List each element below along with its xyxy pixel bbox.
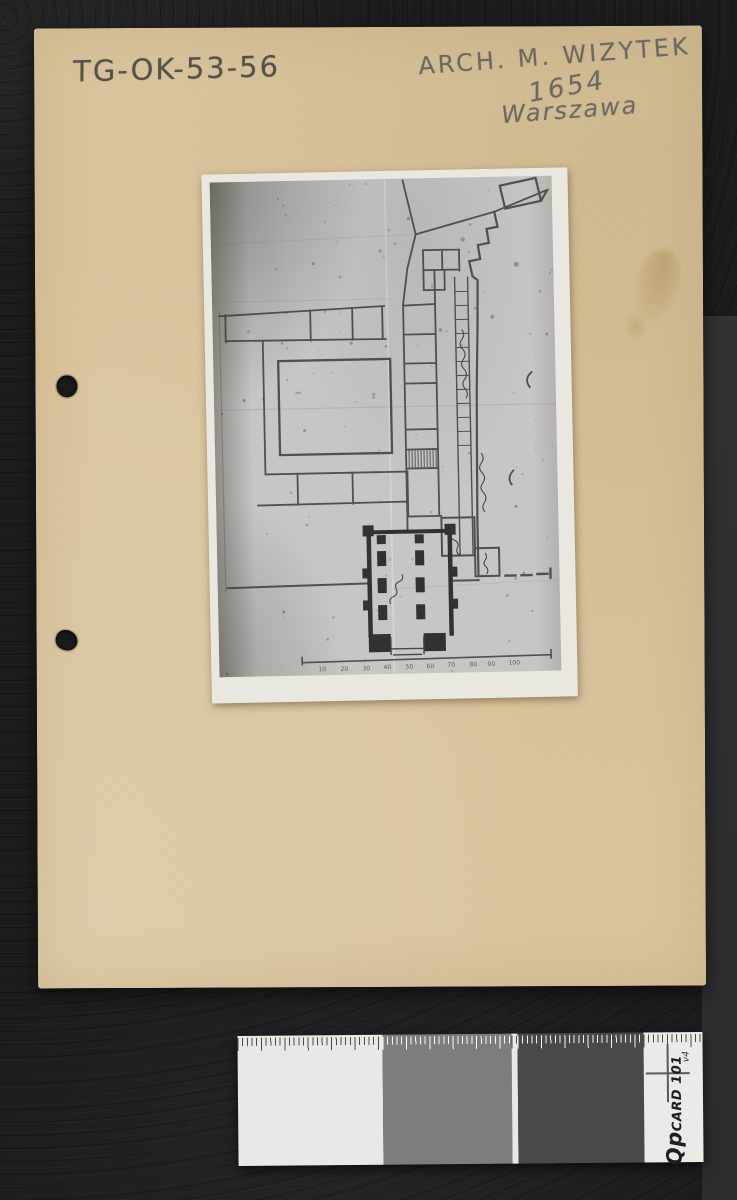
scale-label: 70 <box>447 662 455 669</box>
stair-hatch <box>409 450 436 468</box>
punch-hole-bottom <box>53 627 80 653</box>
scale-label: 10 <box>318 666 326 673</box>
scale-label: 100 <box>508 659 520 666</box>
scale-label: 50 <box>405 663 413 670</box>
paper-creases <box>210 176 562 678</box>
scale-label: 20 <box>340 666 348 673</box>
annotation-script <box>484 553 488 574</box>
north-wing <box>219 306 386 342</box>
south-wing <box>257 472 408 520</box>
annotation-script <box>389 573 404 604</box>
archival-scan: TG-OK-53-56 ARCH. M. WIZYTEK 1654 Warsza… <box>0 0 737 1200</box>
dashed-boundary <box>505 569 550 579</box>
west-line <box>228 580 479 588</box>
ruler-ticks <box>643 1034 702 1048</box>
qpcard-label: v4 QpCARD 101 <box>643 1032 703 1163</box>
catalog-card: TG-OK-53-56 ARCH. M. WIZYTEK 1654 Warsza… <box>34 26 706 989</box>
pen-marks <box>507 372 533 484</box>
photo-print: 10 20 30 40 50 60 70 80 90 100 <box>201 167 578 703</box>
qpcard-brand: QpCARD 101 <box>661 1055 686 1165</box>
floor-plan-drawing: 10 20 30 40 50 60 70 80 90 100 <box>210 176 562 678</box>
ruler-ticks <box>517 1034 643 1048</box>
qpcard-brand-rest: CARD 101 <box>669 1055 685 1131</box>
scale-label: 90 <box>487 661 495 668</box>
calibration-patch-gray <box>382 1034 512 1165</box>
church <box>361 524 459 656</box>
floor-plan-photo: 10 20 30 40 50 60 70 80 90 100 <box>210 176 562 678</box>
stain-mark-small <box>623 312 649 342</box>
scale-label: 40 <box>383 664 391 671</box>
scale-label: 60 <box>426 663 434 670</box>
inscription-city: Warszawa <box>500 91 639 129</box>
qpcard-brand-prefix: Qp <box>662 1131 686 1165</box>
plan-walls <box>217 178 558 667</box>
qp-calibration-card: v4 QpCARD 101 <box>237 1032 703 1166</box>
annotation-script <box>479 453 486 512</box>
annotation-script <box>460 329 468 398</box>
background-right-band <box>702 316 737 1200</box>
church-entrance <box>391 636 424 655</box>
ruler-ticks <box>237 1037 382 1051</box>
ruler-ticks <box>382 1036 511 1050</box>
sacristy <box>441 517 475 556</box>
scale-label: 30 <box>362 665 370 672</box>
corner-building <box>500 178 548 209</box>
punch-hole-top <box>56 375 77 397</box>
catalog-number: TG-OK-53-56 <box>73 49 280 88</box>
calibration-patch-white <box>237 1035 383 1166</box>
scale-label: 80 <box>469 661 477 668</box>
calibration-patch-dark <box>517 1032 644 1163</box>
